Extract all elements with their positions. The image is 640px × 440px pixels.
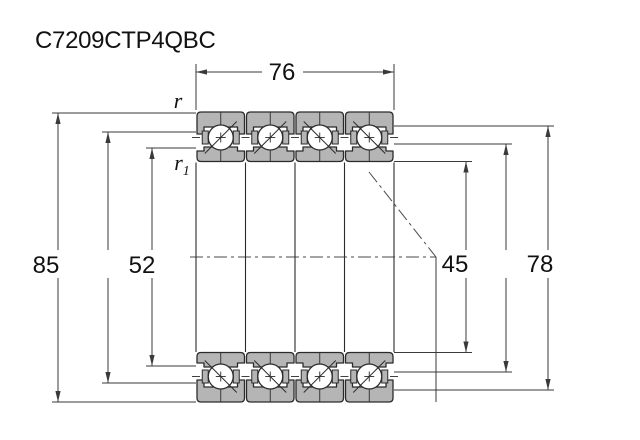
chamfer-r1-label: r1 — [174, 150, 190, 179]
bearing-section — [197, 112, 245, 162]
chamfer-r-label: r — [174, 88, 183, 113]
contact-angle-leader — [369, 172, 436, 257]
dim-78-label: 78 — [527, 251, 554, 278]
bearing-section — [296, 353, 344, 403]
drawing-title: C7209CTP4QBC — [35, 27, 215, 54]
dim-bore-label: 45 — [442, 251, 469, 278]
bearing-diagram: C7209CTP4QBC 76 85 52 45 78 r r1 — [0, 0, 640, 440]
bearing-sections-top — [197, 112, 393, 162]
dim-width-label: 76 — [269, 59, 296, 86]
bearing-section — [247, 112, 295, 162]
bearing-section — [346, 353, 394, 403]
bearing-sections-bottom — [197, 353, 393, 403]
dim-52-label: 52 — [129, 252, 156, 279]
bearing-section — [346, 112, 394, 162]
bearing-section — [296, 112, 344, 162]
dim-od-label: 85 — [33, 252, 60, 279]
bearing-section — [247, 353, 295, 403]
bearing-section — [197, 353, 245, 403]
technical-drawing-page: C7209CTP4QBC 76 85 52 45 78 r r1 — [0, 0, 640, 440]
